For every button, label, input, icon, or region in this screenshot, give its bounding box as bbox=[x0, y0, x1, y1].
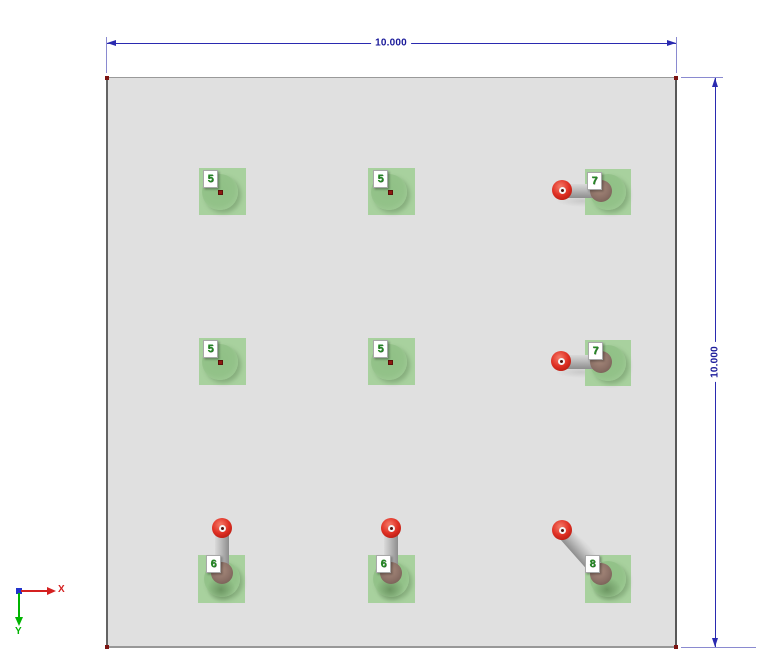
hinge-sphere[interactable] bbox=[381, 518, 401, 538]
node-center-point[interactable] bbox=[388, 190, 393, 195]
y-axis-line bbox=[18, 593, 20, 618]
x-axis-line bbox=[21, 590, 48, 592]
node-number-tag[interactable]: 5 bbox=[373, 170, 388, 188]
dimension-arrow-down-icon bbox=[712, 638, 718, 647]
hinge-sphere[interactable] bbox=[552, 180, 572, 200]
dimension-right-value[interactable]: 10.000 bbox=[710, 342, 721, 382]
corner-node-topleft[interactable] bbox=[105, 76, 109, 80]
cad-viewport: 10.000 10.000 X Y 5 5 bbox=[0, 0, 760, 672]
y-axis-label: Y bbox=[15, 626, 22, 637]
node-number-tag[interactable]: 7 bbox=[587, 172, 602, 190]
hinge-hub-icon bbox=[559, 527, 566, 534]
node-center-point[interactable] bbox=[388, 360, 393, 365]
extension-line-top-right bbox=[676, 37, 677, 73]
y-axis-arrow-icon bbox=[15, 617, 23, 626]
node-number-tag[interactable]: 5 bbox=[203, 170, 218, 188]
corner-node-bottomleft[interactable] bbox=[105, 645, 109, 649]
hinge-hub-icon bbox=[558, 358, 565, 365]
node-number-tag[interactable]: 5 bbox=[203, 340, 218, 358]
node-number-tag[interactable]: 7 bbox=[588, 342, 603, 360]
hinge-hub-icon bbox=[219, 525, 226, 532]
node-center-point[interactable] bbox=[218, 360, 223, 365]
dimension-arrow-up-icon bbox=[712, 78, 718, 87]
node-number-tag[interactable]: 5 bbox=[373, 340, 388, 358]
x-axis-label: X bbox=[58, 584, 65, 595]
extension-line-right-bottom bbox=[681, 647, 756, 648]
corner-node-bottomright[interactable] bbox=[674, 645, 678, 649]
hinge-hub-icon bbox=[388, 525, 395, 532]
node-number-tag[interactable]: 6 bbox=[376, 555, 391, 573]
dimension-arrow-left-icon bbox=[107, 40, 116, 46]
hinge-sphere[interactable] bbox=[212, 518, 232, 538]
node-center-point[interactable] bbox=[218, 190, 223, 195]
x-axis-arrow-icon bbox=[47, 587, 56, 595]
node-number-tag[interactable]: 6 bbox=[206, 555, 221, 573]
corner-node-topright[interactable] bbox=[674, 76, 678, 80]
dimension-arrow-right-icon bbox=[667, 40, 676, 46]
node-number-tag[interactable]: 8 bbox=[585, 555, 600, 573]
hinge-sphere[interactable] bbox=[551, 351, 571, 371]
hinge-hub-icon bbox=[559, 187, 566, 194]
hinge-sphere[interactable] bbox=[552, 520, 572, 540]
dimension-top-value[interactable]: 10.000 bbox=[371, 38, 411, 49]
